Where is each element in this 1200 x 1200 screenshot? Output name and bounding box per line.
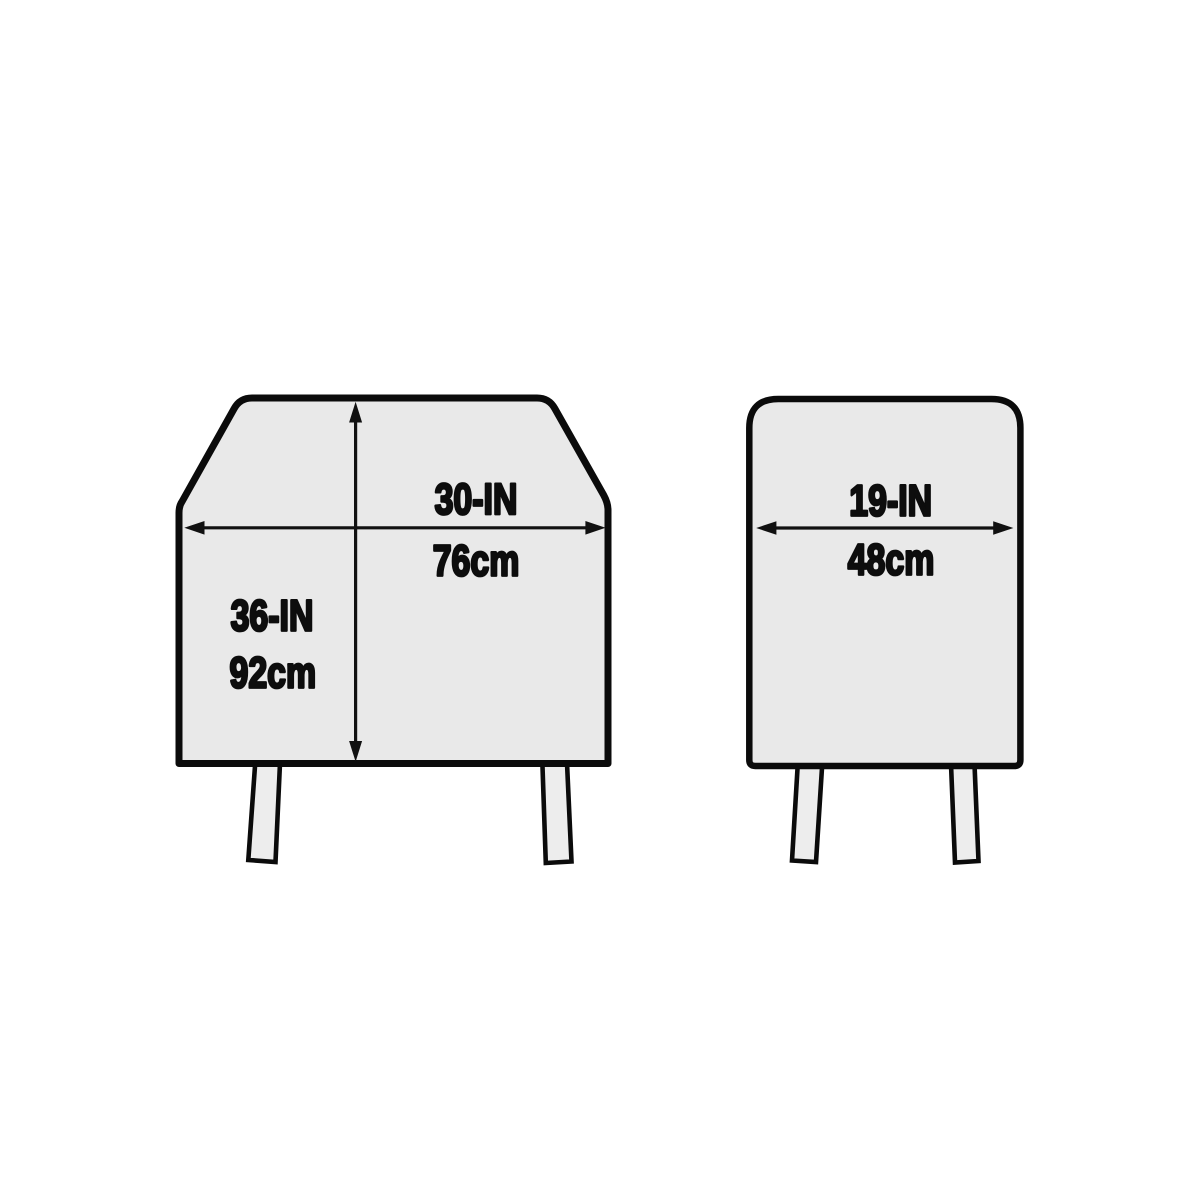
svg-text:92cm: 92cm [229, 648, 316, 697]
svg-text:48cm: 48cm [848, 535, 935, 584]
svg-text:30-IN: 30-IN [435, 475, 518, 524]
svg-text:76cm: 76cm [433, 536, 520, 585]
svg-text:36-IN: 36-IN [231, 591, 314, 640]
svg-text:19-IN: 19-IN [849, 476, 932, 525]
